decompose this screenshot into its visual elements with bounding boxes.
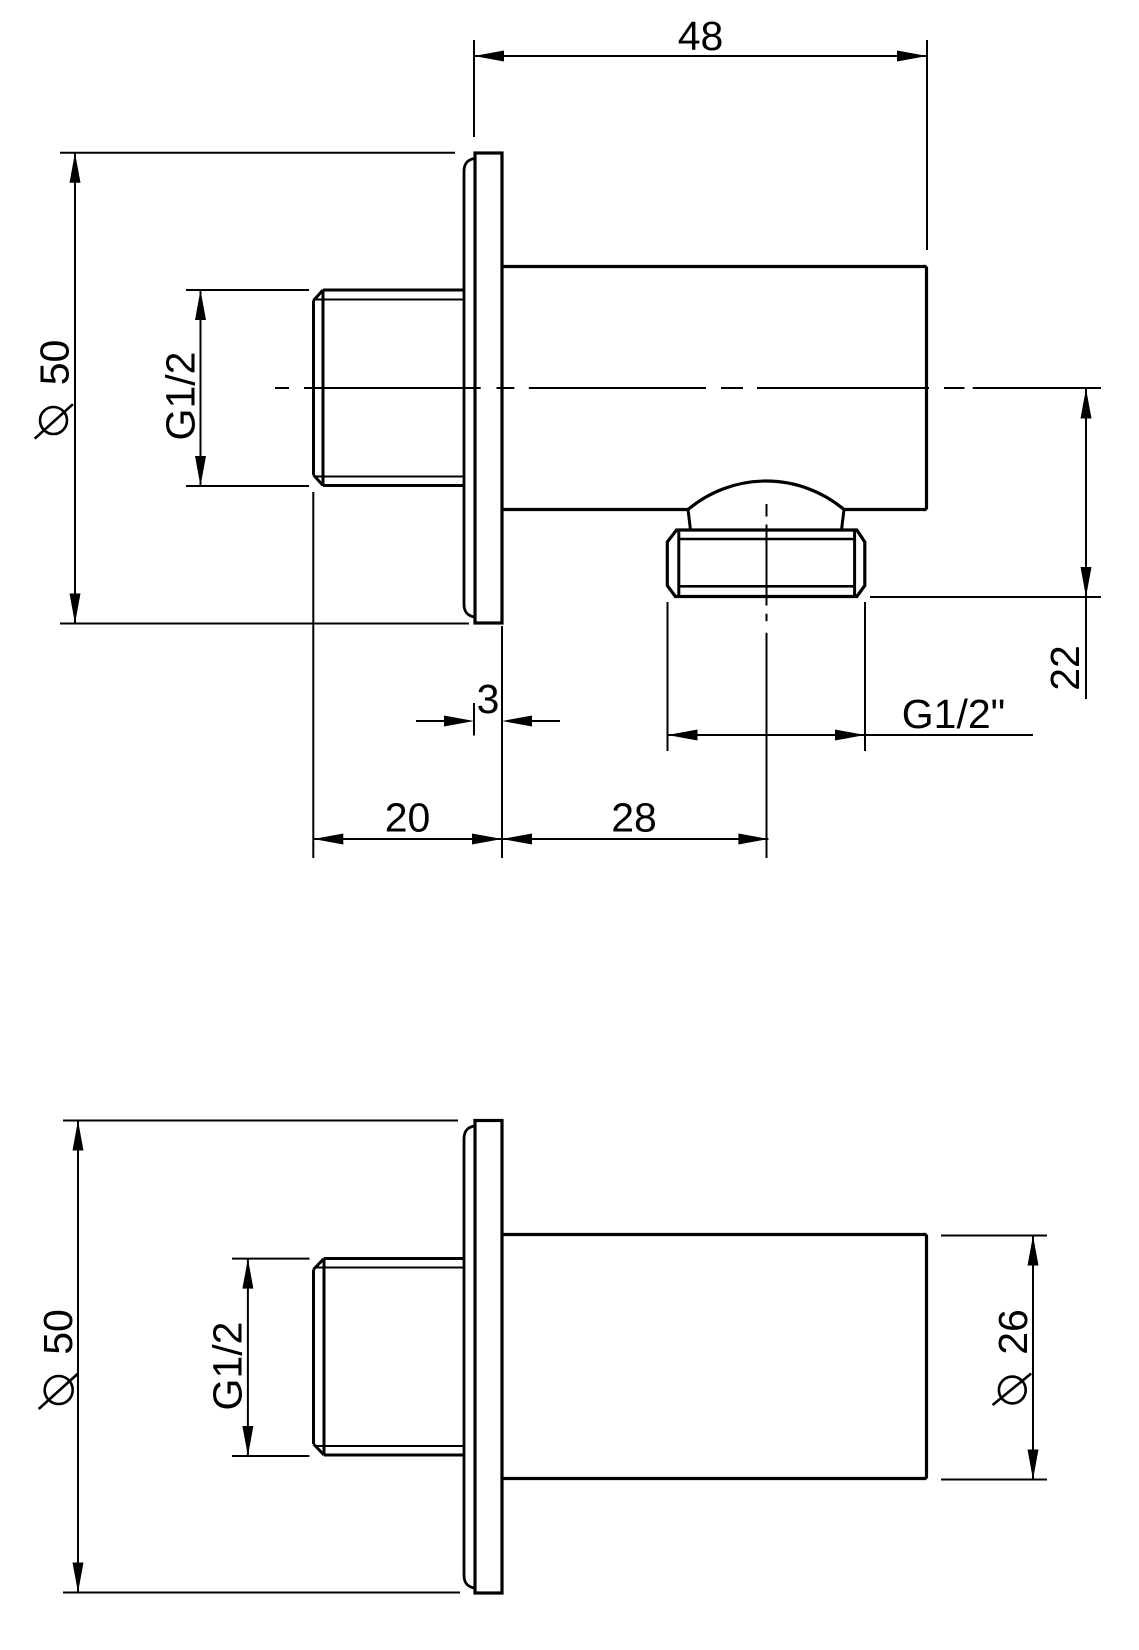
svg-text:50: 50 — [35, 1309, 81, 1355]
svg-text:20: 20 — [385, 795, 431, 841]
svg-text:48: 48 — [678, 13, 724, 59]
svg-text:3: 3 — [477, 676, 500, 722]
svg-text:22: 22 — [1042, 645, 1088, 691]
svg-text:G1/2: G1/2 — [205, 1322, 251, 1411]
svg-text:G1/2": G1/2" — [902, 691, 1005, 737]
svg-text:50: 50 — [32, 340, 78, 386]
svg-text:G1/2: G1/2 — [158, 352, 204, 441]
svg-text:26: 26 — [990, 1309, 1036, 1355]
svg-text:28: 28 — [611, 795, 657, 841]
